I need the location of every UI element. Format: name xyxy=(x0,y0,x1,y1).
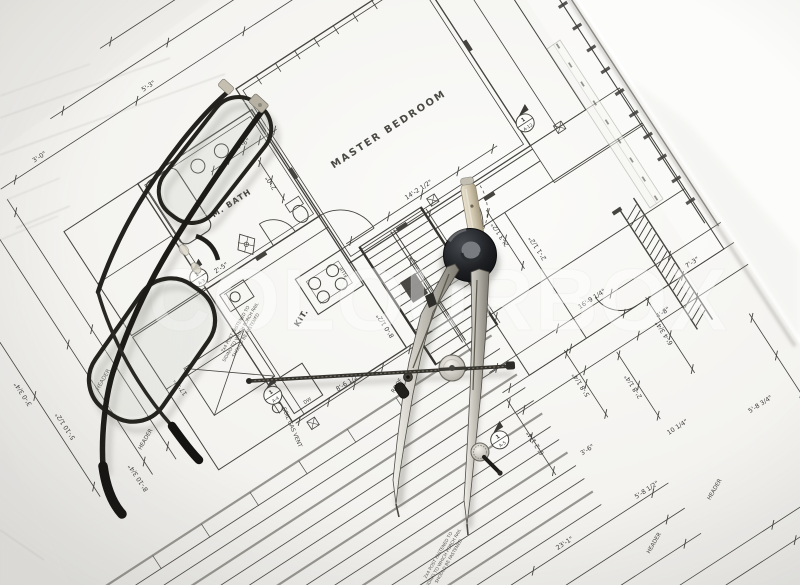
rod-end-cap xyxy=(246,378,252,384)
needle-point xyxy=(467,524,468,535)
rod-end-cap xyxy=(506,361,515,369)
leg-joint-screw-center xyxy=(406,375,410,379)
hinge-screw xyxy=(258,103,262,107)
disc-center xyxy=(449,365,455,371)
clamp-bolt-tip xyxy=(497,470,502,475)
scene-svg: 14'-2 1/2"8'-6 1/2"2'-3 1/2"2'-5"17'-6"5… xyxy=(0,0,800,585)
photo-blueprint-scene: 14'-2 1/2"8'-6 1/2"2'-3 1/2"2'-5"17'-6"5… xyxy=(0,0,800,585)
